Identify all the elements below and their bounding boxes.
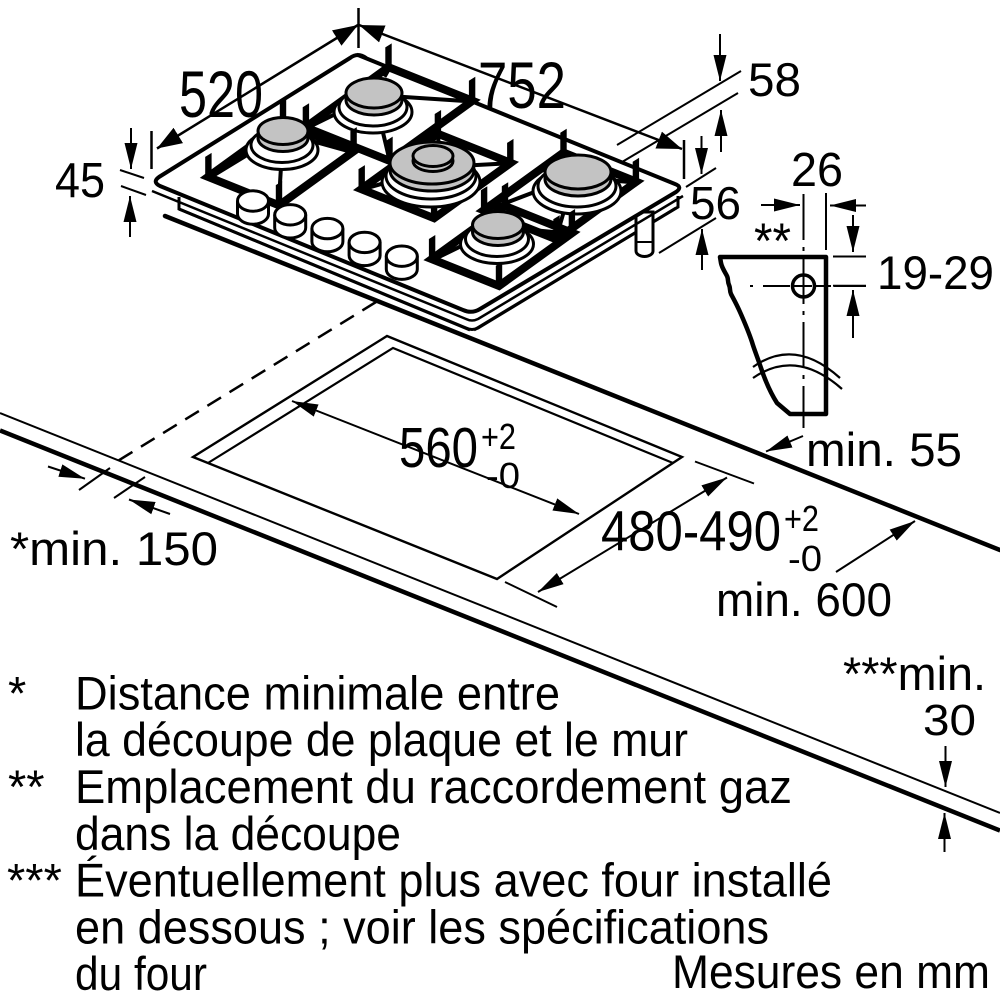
svg-text:***min.: ***min.	[843, 647, 986, 700]
svg-text:-0: -0	[486, 455, 520, 496]
svg-text:56: 56	[690, 177, 741, 229]
svg-text:58: 58	[748, 53, 801, 106]
svg-text:*: *	[8, 666, 26, 719]
svg-text:min. 600: min. 600	[716, 573, 892, 626]
svg-text:min. 55: min. 55	[806, 423, 962, 476]
svg-text:*min. 150: *min. 150	[10, 522, 218, 575]
svg-text:Emplacement du raccordement ga: Emplacement du raccordement gaz	[75, 760, 792, 813]
svg-text:en dessous ; voir les spécific: en dessous ; voir les spécifications	[75, 900, 769, 953]
svg-text:la découpe de plaque et le mur: la découpe de plaque et le mur	[75, 713, 688, 766]
svg-text:19-29: 19-29	[877, 246, 994, 299]
svg-text:Mesures en mm: Mesures en mm	[672, 945, 990, 998]
svg-text:26: 26	[791, 144, 843, 197]
svg-text:***: ***	[7, 854, 62, 907]
svg-text:Éventuellement plus avec four: Éventuellement plus avec four installé	[75, 854, 832, 907]
svg-text:**: **	[8, 760, 45, 813]
svg-text:du four: du four	[75, 947, 207, 1000]
svg-text:+2: +2	[481, 416, 516, 457]
svg-text:Distance minimale entre: Distance minimale entre	[75, 666, 560, 719]
svg-text:30: 30	[923, 696, 976, 745]
svg-text:dans la découpe: dans la découpe	[75, 807, 401, 860]
svg-text:+2: +2	[784, 498, 819, 539]
svg-text:45: 45	[55, 154, 105, 208]
svg-text:560: 560	[399, 416, 478, 480]
svg-text:480-490: 480-490	[601, 500, 781, 564]
svg-text:**: **	[754, 213, 791, 269]
